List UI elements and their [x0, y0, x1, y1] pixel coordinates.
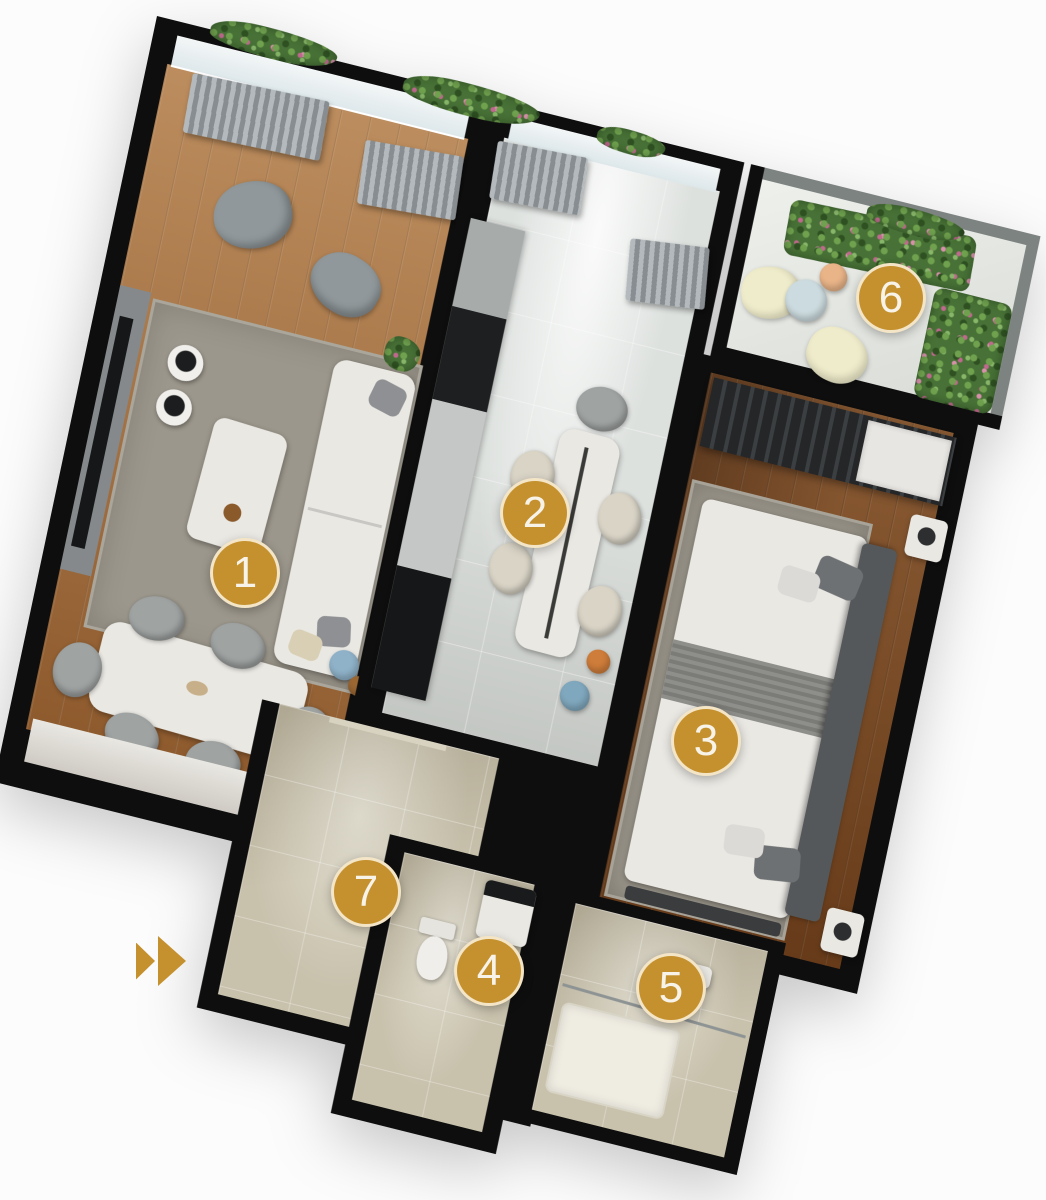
room-marker-4[interactable]: 4 [454, 936, 524, 1006]
floor-plan-canvas: 1 2 3 4 5 6 7 [0, 0, 1046, 1200]
room-marker-2-label: 2 [523, 491, 547, 535]
room-marker-4-label: 4 [477, 949, 501, 993]
fast-forward-icon[interactable] [136, 936, 186, 986]
fast-forward-triangle-small [136, 943, 155, 980]
room-marker-2[interactable]: 2 [500, 478, 570, 548]
room-marker-7[interactable]: 7 [331, 857, 401, 927]
room-marker-5[interactable]: 5 [636, 953, 706, 1023]
apartment-plan [0, 16, 1041, 1200]
room-marker-5-label: 5 [659, 966, 683, 1010]
room-marker-6-label: 6 [879, 276, 903, 320]
room-marker-1[interactable]: 1 [210, 538, 280, 608]
room-marker-6[interactable]: 6 [856, 263, 926, 333]
room-marker-7-label: 7 [354, 870, 378, 914]
room-marker-1-label: 1 [233, 551, 257, 595]
fast-forward-triangle-large [158, 936, 186, 986]
room-marker-3[interactable]: 3 [671, 706, 741, 776]
kitchen-curtain-right [625, 238, 710, 310]
bed-pillow [723, 823, 766, 859]
room-marker-3-label: 3 [694, 719, 718, 763]
